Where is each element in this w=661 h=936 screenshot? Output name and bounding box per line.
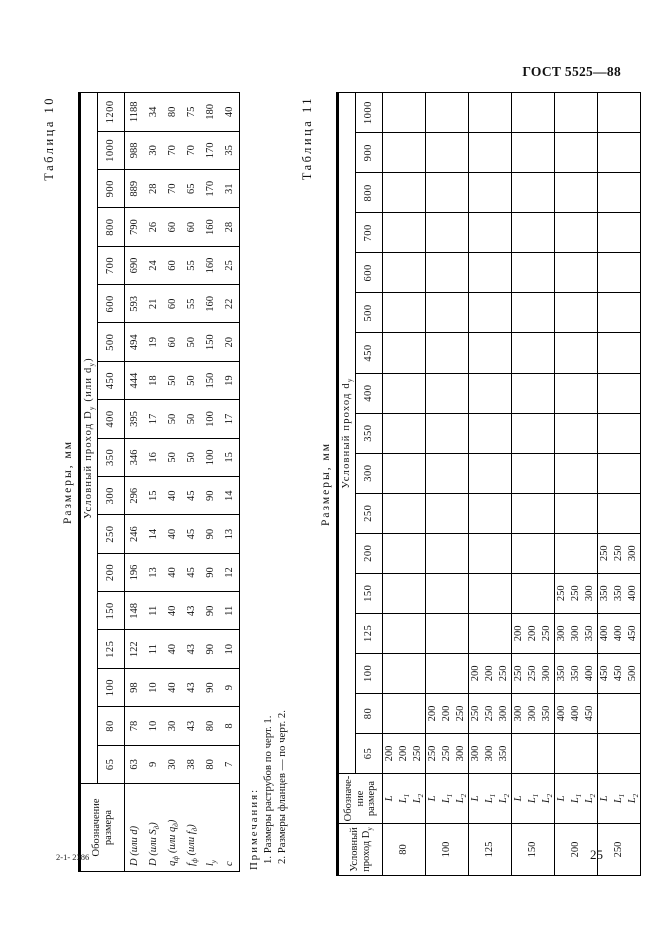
t11-cell [440,333,454,373]
t11-cell [454,653,469,693]
t11-cell [526,333,540,373]
t11-cell: 250 [454,693,469,733]
t10-cell: 22 [220,285,240,323]
t11-cell: 200 [426,693,441,733]
t11-cell [612,493,626,533]
t11-cell [583,253,598,293]
t11-cell [598,493,613,533]
t11-cell [440,533,454,573]
t11-cell [583,453,598,493]
t10-cell: 50 [163,361,182,399]
t10-cell: 790 [125,208,145,246]
t10-cell: 296 [125,477,145,515]
t11-cell [411,133,426,173]
t10-cell: 60 [163,208,182,246]
t11-cell [512,173,527,213]
t11-column-header: 900 [356,133,383,173]
t10-cell: 38 [182,745,201,783]
t10-row: lу80809090909090901001001501501601601601… [201,93,220,872]
t10-cell: 63 [125,745,145,783]
t11-cell [426,613,441,653]
t11-cell [540,253,555,293]
t11-cell [583,133,598,173]
t11-cell [626,333,641,373]
table-10-notes: Примечания: 1. Размеры раструбов по черт… [247,92,289,872]
t11-cell [512,213,527,253]
table-11-block: Таблица 11 Размеры, мм Условный проход D… [298,92,640,876]
t11-cell [426,173,441,213]
t11-row-label: L2 [454,774,469,824]
t11-cell [612,453,626,493]
t11-cell [526,573,540,613]
t11-cell [540,453,555,493]
t11-cell [569,453,583,493]
t10-column-header: 1000 [98,131,125,169]
t11-cell [483,133,497,173]
t11-cell: 400 [569,693,583,733]
t10-cell: 160 [201,285,220,323]
t11-cell [483,413,497,453]
t10-cell: 55 [182,246,201,284]
t10-column-header: 800 [98,208,125,246]
t11-cell: 250 [526,653,540,693]
t11-cell [397,253,411,293]
t10-cell: 15 [144,477,163,515]
t11-cell: 250 [555,573,570,613]
t11-cell: 250 [512,653,527,693]
t10-cell: 160 [201,208,220,246]
t11-cell [469,413,484,453]
t11-cell [512,333,527,373]
t11-cell [469,493,484,533]
t11-dn-value: 100 [426,824,469,876]
t11-cell [555,333,570,373]
t11-row: L2500450400300 [626,93,641,876]
t10-cell: 90 [201,668,220,706]
t11-cell [383,693,398,733]
t11-row-label: L [383,774,398,824]
t10-row: qф (или qд)30304040404040405050506060606… [163,93,182,872]
t11-row: L1400350300250 [569,93,583,876]
t11-cell [555,173,570,213]
t11-row-label: L [469,774,484,824]
t11-cell [497,413,512,453]
t11-cell [483,93,497,133]
t11-cell: 350 [583,613,598,653]
t10-cell: 148 [125,592,145,630]
t10-cell: 90 [201,515,220,553]
t11-cell [626,293,641,333]
t11-cell: 350 [555,653,570,693]
t10-cell: 70 [163,131,182,169]
t11-cell [411,253,426,293]
table-11-title: Таблица 11 [300,96,315,876]
t11-cell [426,493,441,533]
t11-cell: 250 [440,733,454,773]
t11-cell [526,253,540,293]
t10-cell: 78 [125,707,145,745]
standard-number-header: ГОСТ 5525—88 [522,64,621,80]
t11-cell [469,253,484,293]
t11-cell [383,493,398,533]
t11-cell [555,453,570,493]
t11-cell [598,373,613,413]
t11-cell [411,213,426,253]
t11-cell [612,413,626,453]
t11-cell [411,573,426,613]
t10-column-group-header: Условный проход Dу (или dу) [80,93,98,784]
t11-cell [540,293,555,333]
t11-cell [426,213,441,253]
t11-cell: 400 [583,653,598,693]
t11-cell [626,173,641,213]
t11-cell [454,173,469,213]
t10-cell: 80 [201,745,220,783]
t10-cell: 50 [182,438,201,476]
t10-cell: 14 [220,477,240,515]
t10-cell: 20 [220,323,240,361]
t11-cell [483,373,497,413]
t11-row: L2300250 [454,93,469,876]
t10-cell: 988 [125,131,145,169]
t11-cell [526,213,540,253]
t11-cell [569,493,583,533]
t11-cell: 250 [483,693,497,733]
t11-cell [555,213,570,253]
t11-column-header: 450 [356,333,383,373]
t11-cell: 350 [497,733,512,773]
t11-cell [440,653,454,693]
t11-row: L1250200 [440,93,454,876]
t11-cell [426,413,441,453]
t11-cell: 500 [626,653,641,693]
t10-column-header: 150 [98,592,125,630]
t11-cell [612,373,626,413]
t11-cell: 300 [555,613,570,653]
t11-cell [383,133,398,173]
t11-column-header: 500 [356,293,383,333]
t10-cell: 60 [182,208,201,246]
t10-cell: 30 [163,707,182,745]
t11-cell [583,413,598,453]
t11-cell [397,413,411,453]
t11-cell [383,613,398,653]
t11-cell [626,453,641,493]
t11-cell: 200 [469,653,484,693]
t10-cell: 28 [144,170,163,208]
t11-cell [555,733,570,773]
t10-row: с789101112131415171920222528313540 [220,93,240,872]
t11-cell [612,733,626,773]
t11-cell [383,333,398,373]
t11-cell [612,133,626,173]
t11-cell: 300 [569,613,583,653]
t10-row-label: fф (или fд) [182,784,201,872]
table-11: Условный проход DуОбозначе- ние размераУ… [336,92,641,876]
t11-cell [540,333,555,373]
t11-cell [440,93,454,133]
table-10-content: Таблица 10 Размеры, мм Обозначение разме… [40,92,288,872]
t11-cell [397,573,411,613]
t10-cell: 10 [220,630,240,668]
t10-cell: 24 [144,246,163,284]
t10-cell: 40 [163,630,182,668]
t11-cell: 400 [598,613,613,653]
t11-cell [383,253,398,293]
t10-column-header: 200 [98,553,125,591]
t10-cell: 43 [182,592,201,630]
t10-cell: 55 [182,285,201,323]
t10-cell: 40 [163,515,182,553]
t11-cell: 350 [540,693,555,733]
t10-cell: 10 [144,668,163,706]
t11-cell [497,213,512,253]
t11-dn-value: 80 [383,824,426,876]
t11-cell [440,253,454,293]
t11-cell [440,133,454,173]
t11-cell [512,533,527,573]
t11-cell [612,293,626,333]
t11-row-label: L [426,774,441,824]
t10-cell: 593 [125,285,145,323]
t11-cell [469,573,484,613]
t11-cell [411,413,426,453]
t11-cell [540,573,555,613]
t11-cell [583,373,598,413]
t10-cell: 180 [201,93,220,132]
t11-cell [569,333,583,373]
t11-cell [512,133,527,173]
t11-cell [426,533,441,573]
t10-column-header: 300 [98,477,125,515]
t11-cell: 400 [612,613,626,653]
t11-column-header: 65 [356,733,383,773]
t10-cell: 40 [163,477,182,515]
t11-row: L2250 [411,93,426,876]
t11-cell [397,93,411,133]
t11-cell: 400 [555,693,570,733]
t11-cell [411,93,426,133]
t11-cell [526,373,540,413]
t11-cell [569,533,583,573]
t11-cell [454,293,469,333]
note-line-2: 2. Размеры фланцев — по черт. 2. [275,92,289,870]
t10-cell: 19 [144,323,163,361]
t11-cell [469,133,484,173]
t11-cell [383,453,398,493]
t11-cell [569,173,583,213]
t10-column-header: 250 [98,515,125,553]
t10-cell: 17 [144,400,163,438]
t11-cell [483,493,497,533]
t11-cell: 200 [440,693,454,733]
t11-cell [497,373,512,413]
t11-cell [598,133,613,173]
t11-cell [598,93,613,133]
t11-cell [540,173,555,213]
t11-cell [469,93,484,133]
t11-row-label: L1 [440,774,454,824]
t11-cell [454,333,469,373]
t11-row-label: L2 [583,774,598,824]
t10-cell: 13 [144,553,163,591]
t10-cell: 100 [201,400,220,438]
t11-column-header: 125 [356,613,383,653]
t10-cell: 9 [220,668,240,706]
t11-column-header: 300 [356,453,383,493]
t11-cell [555,293,570,333]
t11-cell [483,453,497,493]
t11-row-label: L1 [569,774,583,824]
t11-cell [426,253,441,293]
t11-cell [526,173,540,213]
t11-cell [612,693,626,733]
t11-cell [598,333,613,373]
t11-cell [583,733,598,773]
t11-cell: 250 [569,573,583,613]
t11-cell: 300 [469,733,484,773]
t11-cell [397,213,411,253]
t11-row-label: L [512,774,527,824]
t11-cell [397,133,411,173]
t11-designation-header: Обозначе- ние размера [338,774,383,824]
t11-cell: 300 [583,573,598,613]
t11-cell [583,293,598,333]
t11-cell [555,373,570,413]
t10-cell: 25 [220,246,240,284]
t11-cell [540,733,555,773]
t11-cell: 250 [469,693,484,733]
t11-cell [540,493,555,533]
t11-row: L1450400350250 [612,93,626,876]
t11-row: 150L300250200 [512,93,527,876]
t11-cell [526,453,540,493]
t11-cell [555,413,570,453]
t11-cell [469,293,484,333]
t11-cell [583,213,598,253]
t11-cell [411,293,426,333]
t10-cell: 1188 [125,93,145,132]
t11-row: 125L300250200 [469,93,484,876]
t11-cell: 300 [512,693,527,733]
t11-cell [626,373,641,413]
t10-cell: 14 [144,515,163,553]
t11-row-label: L1 [397,774,411,824]
t11-cell: 450 [626,613,641,653]
t11-cell: 200 [512,613,527,653]
t11-cell: 250 [540,613,555,653]
t10-cell: 889 [125,170,145,208]
t10-cell: 11 [220,592,240,630]
t11-cell [397,693,411,733]
t11-cell: 250 [426,733,441,773]
t11-column-header: 400 [356,373,383,413]
table-11-units-label: Размеры, мм [320,92,332,876]
t11-cell: 250 [497,653,512,693]
t10-cell: 75 [182,93,201,132]
table-10-title: Таблица 10 [42,96,57,872]
t11-row-label: L [555,774,570,824]
t11-cell [626,493,641,533]
t11-cell [583,173,598,213]
t11-cell [555,253,570,293]
t11-row: L2350300250 [540,93,555,876]
t11-cell [426,373,441,413]
t11-cell [454,413,469,453]
t11-cell [383,413,398,453]
t11-cell [583,93,598,133]
t11-row-label: L2 [540,774,555,824]
t11-cell [483,253,497,293]
t11-row-label: L2 [411,774,426,824]
t10-row: fф (или fд)38434343434545455050505055556… [182,93,201,872]
t10-cell: 15 [220,438,240,476]
t11-row: L2350300250 [497,93,512,876]
t11-cell [626,133,641,173]
t11-column-header: 700 [356,213,383,253]
t11-row: 200L400350300250 [555,93,570,876]
page-number: 25 [590,847,603,863]
t10-cell: 45 [182,515,201,553]
t10-cell: 7 [220,745,240,783]
t10-cell: 90 [201,477,220,515]
t11-cell [512,253,527,293]
t11-column-header: 600 [356,253,383,293]
t11-cell [555,133,570,173]
t10-cell: 31 [220,170,240,208]
t11-cell [440,573,454,613]
t11-cell [583,533,598,573]
t11-cell [426,453,441,493]
t11-cell [497,173,512,213]
t11-cell [512,573,527,613]
t10-cell: 346 [125,438,145,476]
t10-row: D (или d)6378981221481962462963463954444… [125,93,145,872]
t10-column-header: 100 [98,668,125,706]
t10-column-header: 900 [98,170,125,208]
t11-column-header: 1000 [356,93,383,133]
t11-column-header: 250 [356,493,383,533]
t11-cell [454,453,469,493]
t11-cell [469,533,484,573]
t11-cell [526,493,540,533]
document-page: ГОСТ 5525—88 Таблица 10 Размеры, мм Обоз… [0,0,661,936]
t10-cell: 494 [125,323,145,361]
t11-cell: 250 [598,533,613,573]
t11-cell [512,733,527,773]
t11-cell [569,293,583,333]
t11-cell [454,613,469,653]
t11-cell [411,493,426,533]
t11-cell [440,173,454,213]
t11-cell [626,693,641,733]
t11-cell [454,133,469,173]
t11-cell: 300 [454,733,469,773]
t10-cell: 16 [144,438,163,476]
t11-row-label: L2 [497,774,512,824]
t10-column-header: 450 [98,361,125,399]
t10-cell: 50 [163,438,182,476]
t11-cell [426,573,441,613]
t11-cell [569,373,583,413]
t11-cell [598,253,613,293]
t10-row-label: lу [201,784,220,872]
t11-cell [440,613,454,653]
t11-cell [411,613,426,653]
t11-column-header: 350 [356,413,383,453]
t10-column-header: 600 [98,285,125,323]
t10-cell: 45 [182,477,201,515]
